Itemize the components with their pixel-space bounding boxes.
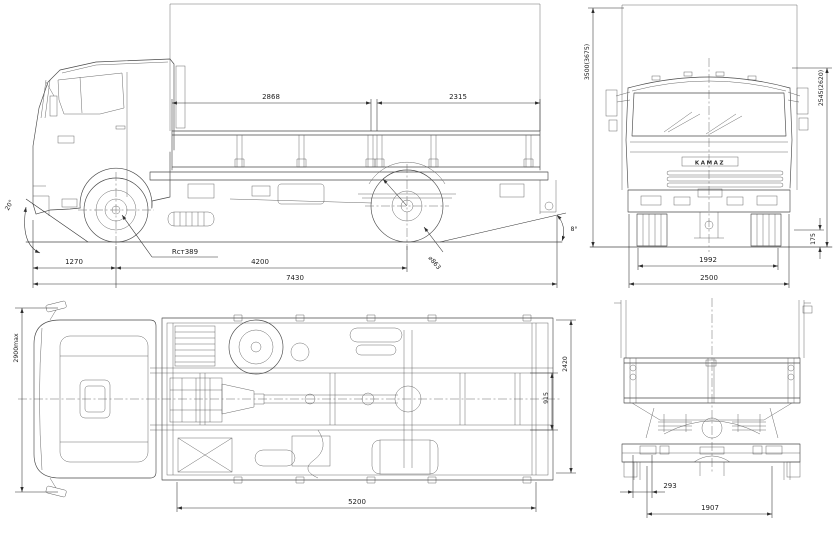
side-view-drawing: 20° 8° Rст389 ⌀863 2868 2315 [3, 4, 577, 288]
cab-badge [58, 136, 74, 143]
mudflap-right [787, 462, 800, 477]
dim-platform-width: 2420 [562, 356, 569, 372]
mirror-side [50, 96, 57, 116]
approach-angle-label: 20° [3, 198, 15, 211]
muffler-top [255, 450, 295, 466]
cab-side [33, 59, 185, 216]
tire-diameter-label: ⌀863 [426, 255, 441, 271]
dim-front-track: 1992 [699, 256, 717, 264]
dim-rear-offset: 293 [663, 482, 676, 490]
dim-front-overhang: 1270 [65, 258, 83, 266]
static-radius-callout: Rст389 [122, 215, 218, 257]
dim-clearance: 175 [810, 233, 817, 245]
mirror-top-right [46, 486, 67, 498]
dim-frame-width: 915 [543, 392, 550, 404]
dim-overall-width: 2500 [700, 274, 718, 282]
platform-rear [614, 300, 812, 403]
tire-diameter-callout: ⌀863 [424, 227, 443, 271]
top-view-drawing: 2900max 915 2420 5200 [13, 301, 576, 512]
spare-wheel-top [229, 320, 283, 374]
dim-body-front-section: 2868 [262, 93, 280, 101]
dim-body-rear-section: 2315 [449, 93, 467, 101]
rear-view-dimensions: 293 1907 [620, 455, 772, 518]
dim-rear-track: 1907 [701, 504, 719, 512]
cargo-platform-side [150, 131, 548, 180]
dim-wheelbase: 4200 [251, 258, 269, 266]
mirror-top-left [46, 301, 67, 313]
rear-bumper [622, 444, 800, 480]
blueprint-canvas: 20° 8° Rст389 ⌀863 2868 2315 [0, 0, 840, 535]
tarpaulin-outline [170, 4, 540, 131]
dim-width-over-mirrors: 2900max [13, 333, 20, 363]
body-section-dimensions: 2868 2315 [172, 93, 540, 131]
rear-view-drawing: 293 1907 [614, 298, 812, 518]
door-handle [116, 126, 125, 129]
air-tank-top [350, 328, 402, 342]
rear-wheel-side [358, 162, 456, 250]
dim-overall-height: 3500(3675) [584, 44, 591, 80]
technical-drawing: 20° 8° Rст389 ⌀863 2868 2315 [0, 0, 840, 535]
front-view-drawing: KAMAZ [584, 5, 832, 288]
mudflap-left [624, 462, 637, 477]
approach-angle: 20° [3, 198, 88, 253]
departure-angle-label: 8° [570, 225, 577, 233]
exhaust-pipe-top [308, 430, 323, 478]
grille-brand-text: KAMAZ [695, 161, 725, 167]
static-radius-label: Rст389 [172, 248, 198, 256]
mirrors-front [606, 88, 808, 131]
headlight-left [641, 196, 661, 205]
battery-box-top [292, 436, 330, 466]
length-dimensions: 1270 4200 7430 [33, 216, 557, 288]
headlight-right [757, 196, 777, 205]
chassis-equipment-side [168, 180, 556, 226]
cab-step [62, 199, 77, 207]
dim-overall-length: 7430 [286, 274, 304, 282]
fuel-tank-top [372, 440, 438, 474]
front-wheel-side [78, 172, 154, 250]
air-intake [176, 66, 185, 128]
top-view-dimensions: 2900max 915 2420 5200 [13, 308, 576, 512]
dim-platform-length: 5200 [348, 498, 366, 506]
dim-cab-height: 2545(2620) [818, 70, 825, 106]
